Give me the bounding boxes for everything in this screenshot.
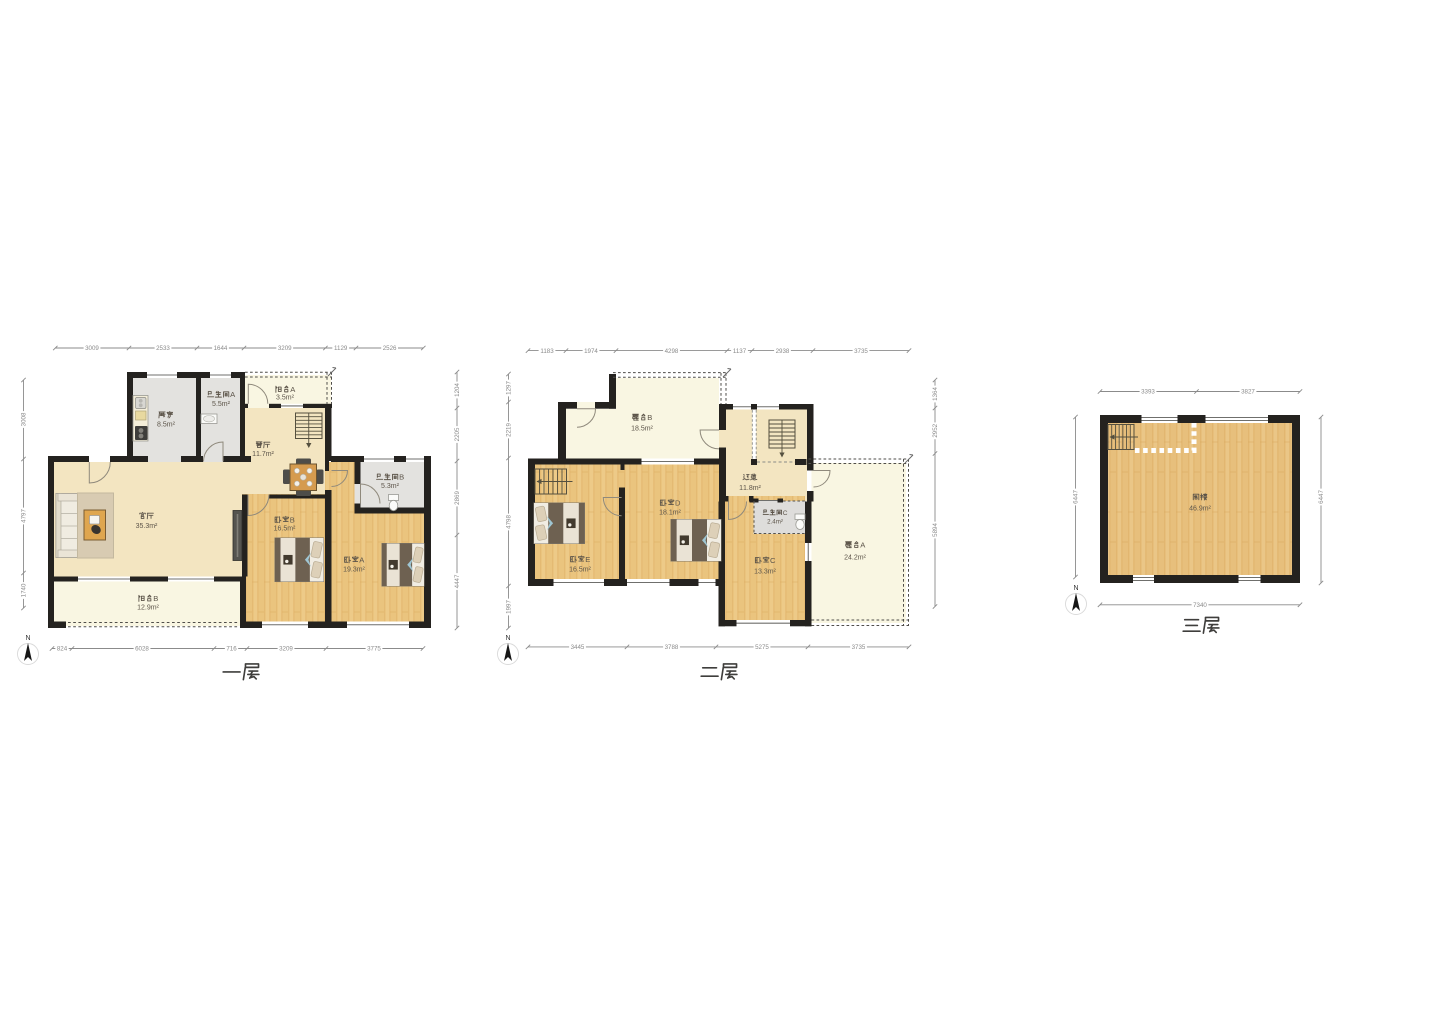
svg-text:4298: 4298	[665, 348, 679, 355]
svg-text:1204: 1204	[454, 383, 461, 397]
svg-text:3209: 3209	[278, 345, 292, 352]
svg-text:4797: 4797	[21, 509, 28, 523]
svg-text:C: C	[783, 510, 788, 517]
svg-text:7340: 7340	[1193, 602, 1207, 609]
svg-text:3008: 3008	[21, 412, 28, 426]
svg-text:²: ²	[781, 519, 783, 526]
svg-text:E: E	[585, 555, 590, 564]
svg-text:3735: 3735	[852, 644, 866, 651]
svg-text:2533: 2533	[156, 345, 170, 352]
svg-text:3735: 3735	[854, 348, 868, 355]
svg-text:2952: 2952	[932, 423, 939, 437]
svg-text:2938: 2938	[776, 348, 790, 355]
svg-text:3009: 3009	[85, 345, 99, 352]
svg-text:2219: 2219	[506, 423, 513, 437]
svg-text:3775: 3775	[367, 646, 381, 653]
svg-text:4798: 4798	[506, 515, 513, 529]
svg-text:3827: 3827	[1241, 389, 1255, 396]
svg-text:6447: 6447	[1318, 490, 1325, 504]
svg-text:1997: 1997	[506, 600, 513, 614]
svg-text:3209: 3209	[279, 646, 293, 653]
svg-text:3393: 3393	[1141, 389, 1155, 396]
svg-text:1137: 1137	[733, 348, 747, 355]
svg-text:2869: 2869	[454, 491, 461, 505]
svg-text:2205: 2205	[454, 427, 461, 441]
svg-text:1129: 1129	[334, 345, 348, 352]
svg-text:1740: 1740	[21, 583, 28, 597]
svg-text:N: N	[1073, 585, 1078, 592]
svg-text:6447: 6447	[1073, 490, 1080, 504]
svg-text:716: 716	[226, 646, 237, 653]
svg-text:D: D	[675, 499, 681, 508]
svg-text:B: B	[153, 594, 158, 603]
svg-text:1644: 1644	[214, 345, 228, 352]
svg-text:N: N	[25, 635, 30, 642]
svg-text:4447: 4447	[454, 574, 461, 588]
svg-text:B: B	[647, 413, 652, 422]
svg-text:N: N	[505, 635, 510, 642]
svg-text:3445: 3445	[571, 644, 585, 651]
svg-text:1364: 1364	[932, 387, 939, 401]
svg-text:1183: 1183	[540, 348, 554, 355]
svg-text:2526: 2526	[383, 345, 397, 352]
svg-text:B: B	[399, 473, 404, 482]
svg-text:1297: 1297	[506, 381, 513, 395]
svg-text:C: C	[770, 556, 776, 565]
svg-text:6028: 6028	[135, 646, 149, 653]
svg-text:5894: 5894	[932, 523, 939, 537]
svg-text:824: 824	[57, 646, 68, 653]
svg-text:B: B	[290, 516, 295, 525]
svg-text:5275: 5275	[755, 644, 769, 651]
svg-text:1974: 1974	[584, 348, 598, 355]
svg-text:3788: 3788	[665, 644, 679, 651]
